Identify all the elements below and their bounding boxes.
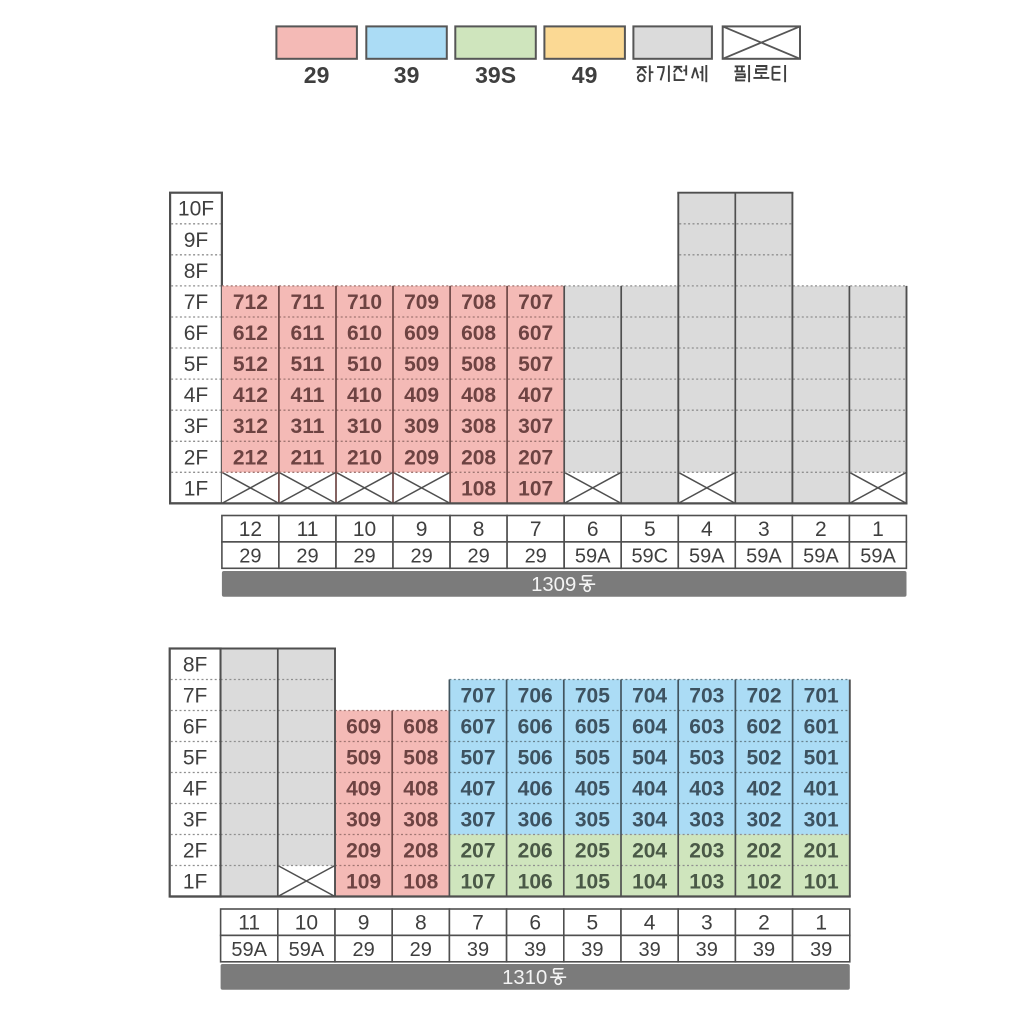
svg-text:608: 608 — [461, 322, 496, 345]
svg-text:59A: 59A — [746, 545, 782, 567]
svg-text:29: 29 — [467, 545, 489, 567]
svg-text:408: 408 — [403, 778, 438, 801]
svg-text:105: 105 — [575, 871, 610, 894]
svg-text:210: 210 — [347, 446, 382, 469]
svg-text:107: 107 — [460, 871, 495, 894]
svg-text:411: 411 — [291, 384, 325, 407]
svg-text:29: 29 — [410, 939, 432, 961]
svg-text:4: 4 — [701, 518, 713, 541]
svg-text:39: 39 — [696, 939, 718, 961]
svg-text:1F: 1F — [184, 477, 209, 500]
svg-text:59C: 59C — [631, 545, 668, 567]
svg-text:208: 208 — [403, 840, 438, 863]
svg-text:7: 7 — [472, 911, 484, 934]
svg-text:12: 12 — [239, 518, 262, 541]
svg-text:39: 39 — [638, 939, 660, 961]
svg-text:707: 707 — [460, 685, 495, 708]
svg-text:7F: 7F — [184, 291, 209, 314]
svg-text:509: 509 — [346, 747, 381, 770]
svg-text:3: 3 — [758, 518, 770, 541]
svg-text:6F: 6F — [184, 322, 209, 345]
svg-text:310: 310 — [347, 415, 382, 438]
svg-text:4: 4 — [644, 911, 656, 934]
svg-text:29: 29 — [353, 545, 375, 567]
svg-text:101: 101 — [804, 871, 839, 894]
svg-text:508: 508 — [403, 747, 438, 770]
svg-text:104: 104 — [632, 871, 667, 894]
svg-text:503: 503 — [689, 747, 724, 770]
svg-text:511: 511 — [291, 353, 325, 376]
svg-text:10: 10 — [353, 518, 376, 541]
svg-text:5F: 5F — [183, 747, 208, 770]
svg-text:108: 108 — [461, 477, 496, 500]
svg-text:406: 406 — [518, 778, 553, 801]
svg-text:407: 407 — [518, 384, 553, 407]
svg-text:8F: 8F — [184, 260, 209, 283]
svg-text:29: 29 — [304, 62, 330, 88]
svg-text:39: 39 — [467, 939, 489, 961]
svg-text:603: 603 — [689, 716, 724, 739]
svg-text:401: 401 — [804, 778, 839, 801]
svg-text:3F: 3F — [184, 415, 209, 438]
svg-text:409: 409 — [346, 778, 381, 801]
svg-text:3: 3 — [701, 911, 713, 934]
svg-text:7F: 7F — [183, 685, 208, 708]
svg-text:309: 309 — [404, 415, 439, 438]
svg-text:705: 705 — [575, 685, 610, 708]
svg-text:209: 209 — [346, 840, 381, 863]
svg-text:610: 610 — [347, 322, 382, 345]
svg-text:405: 405 — [575, 778, 610, 801]
svg-text:109: 109 — [346, 871, 381, 894]
svg-text:203: 203 — [689, 840, 724, 863]
svg-text:6: 6 — [587, 518, 599, 541]
svg-text:39: 39 — [524, 939, 546, 961]
svg-text:9: 9 — [416, 518, 428, 541]
svg-text:408: 408 — [461, 384, 496, 407]
svg-text:11: 11 — [297, 518, 319, 541]
svg-text:29: 29 — [352, 939, 374, 961]
svg-text:1: 1 — [872, 518, 884, 541]
svg-text:6: 6 — [529, 911, 541, 934]
svg-text:402: 402 — [746, 778, 781, 801]
svg-text:611: 611 — [291, 322, 325, 345]
svg-text:5F: 5F — [184, 353, 209, 376]
svg-text:302: 302 — [746, 809, 781, 832]
svg-text:510: 510 — [347, 353, 382, 376]
svg-text:10F: 10F — [178, 198, 214, 221]
svg-text:2: 2 — [758, 911, 770, 934]
svg-text:710: 710 — [347, 291, 382, 314]
svg-text:701: 701 — [804, 685, 839, 708]
svg-text:2F: 2F — [183, 840, 208, 863]
svg-text:102: 102 — [746, 871, 781, 894]
svg-text:202: 202 — [746, 840, 781, 863]
svg-text:8F: 8F — [183, 654, 208, 677]
svg-text:305: 305 — [575, 809, 610, 832]
svg-text:707: 707 — [518, 291, 553, 314]
svg-text:39: 39 — [394, 62, 420, 88]
svg-text:312: 312 — [233, 415, 268, 438]
svg-text:1309: 1309 — [531, 574, 576, 596]
svg-text:5: 5 — [587, 911, 599, 934]
svg-text:59A: 59A — [575, 545, 611, 567]
svg-text:506: 506 — [518, 747, 553, 770]
svg-text:311: 311 — [291, 415, 325, 438]
svg-text:4F: 4F — [184, 384, 209, 407]
svg-text:205: 205 — [575, 840, 610, 863]
svg-text:103: 103 — [689, 871, 724, 894]
svg-text:9F: 9F — [184, 229, 209, 252]
svg-text:612: 612 — [233, 322, 268, 345]
svg-text:201: 201 — [804, 840, 839, 863]
svg-text:504: 504 — [632, 747, 667, 770]
svg-text:607: 607 — [518, 322, 553, 345]
svg-text:4F: 4F — [183, 778, 208, 801]
svg-text:403: 403 — [689, 778, 724, 801]
svg-text:409: 409 — [404, 384, 439, 407]
svg-text:2: 2 — [815, 518, 827, 541]
svg-text:8: 8 — [415, 911, 427, 934]
svg-text:10: 10 — [295, 911, 318, 934]
svg-text:606: 606 — [518, 716, 553, 739]
svg-text:59A: 59A — [803, 545, 839, 567]
svg-text:5: 5 — [644, 518, 656, 541]
svg-text:29: 29 — [296, 545, 318, 567]
svg-text:308: 308 — [403, 809, 438, 832]
svg-text:29: 29 — [410, 545, 432, 567]
svg-text:11: 11 — [238, 911, 260, 934]
svg-text:209: 209 — [404, 446, 439, 469]
svg-text:1310: 1310 — [502, 967, 547, 989]
svg-text:304: 304 — [632, 809, 667, 832]
svg-text:708: 708 — [461, 291, 496, 314]
svg-text:2F: 2F — [184, 446, 209, 469]
svg-text:407: 407 — [460, 778, 495, 801]
svg-text:207: 207 — [518, 446, 553, 469]
svg-text:412: 412 — [233, 384, 268, 407]
svg-text:509: 509 — [404, 353, 439, 376]
svg-text:29: 29 — [239, 545, 261, 567]
svg-text:206: 206 — [518, 840, 553, 863]
svg-text:702: 702 — [746, 685, 781, 708]
svg-text:9: 9 — [358, 911, 370, 934]
svg-text:605: 605 — [575, 716, 610, 739]
svg-text:512: 512 — [233, 353, 268, 376]
svg-text:39: 39 — [581, 939, 603, 961]
svg-text:703: 703 — [689, 685, 724, 708]
svg-text:609: 609 — [346, 716, 381, 739]
svg-text:211: 211 — [291, 446, 325, 469]
svg-text:307: 307 — [518, 415, 553, 438]
svg-text:711: 711 — [291, 291, 325, 314]
svg-text:706: 706 — [518, 685, 553, 708]
svg-text:1F: 1F — [183, 871, 208, 894]
svg-text:307: 307 — [460, 809, 495, 832]
svg-text:609: 609 — [404, 322, 439, 345]
svg-text:39: 39 — [753, 939, 775, 961]
svg-text:212: 212 — [233, 446, 268, 469]
svg-text:607: 607 — [460, 716, 495, 739]
svg-text:59A: 59A — [289, 939, 325, 961]
svg-text:602: 602 — [746, 716, 781, 739]
svg-text:507: 507 — [518, 353, 553, 376]
svg-text:39: 39 — [810, 939, 832, 961]
svg-text:208: 208 — [461, 446, 496, 469]
svg-text:59A: 59A — [860, 545, 896, 567]
svg-text:303: 303 — [689, 809, 724, 832]
svg-text:604: 604 — [632, 716, 667, 739]
svg-text:502: 502 — [746, 747, 781, 770]
svg-text:29: 29 — [525, 545, 547, 567]
svg-text:39S: 39S — [475, 62, 516, 88]
svg-text:8: 8 — [473, 518, 485, 541]
svg-text:59A: 59A — [689, 545, 725, 567]
svg-text:204: 204 — [632, 840, 667, 863]
svg-text:106: 106 — [518, 871, 553, 894]
svg-text:59A: 59A — [231, 939, 267, 961]
svg-text:704: 704 — [632, 685, 667, 708]
svg-text:712: 712 — [233, 291, 268, 314]
svg-text:709: 709 — [404, 291, 439, 314]
svg-text:107: 107 — [518, 477, 553, 500]
svg-text:404: 404 — [632, 778, 667, 801]
svg-text:207: 207 — [460, 840, 495, 863]
svg-text:608: 608 — [403, 716, 438, 739]
svg-text:6F: 6F — [183, 716, 208, 739]
svg-text:501: 501 — [804, 747, 839, 770]
svg-text:601: 601 — [804, 716, 839, 739]
svg-text:3F: 3F — [183, 809, 208, 832]
svg-text:410: 410 — [347, 384, 382, 407]
svg-text:505: 505 — [575, 747, 610, 770]
svg-text:301: 301 — [804, 809, 839, 832]
svg-text:309: 309 — [346, 809, 381, 832]
svg-text:7: 7 — [530, 518, 542, 541]
svg-text:508: 508 — [461, 353, 496, 376]
svg-text:108: 108 — [403, 871, 438, 894]
svg-text:507: 507 — [460, 747, 495, 770]
svg-text:49: 49 — [572, 62, 598, 88]
svg-text:306: 306 — [518, 809, 553, 832]
svg-text:1: 1 — [815, 911, 827, 934]
svg-text:308: 308 — [461, 415, 496, 438]
